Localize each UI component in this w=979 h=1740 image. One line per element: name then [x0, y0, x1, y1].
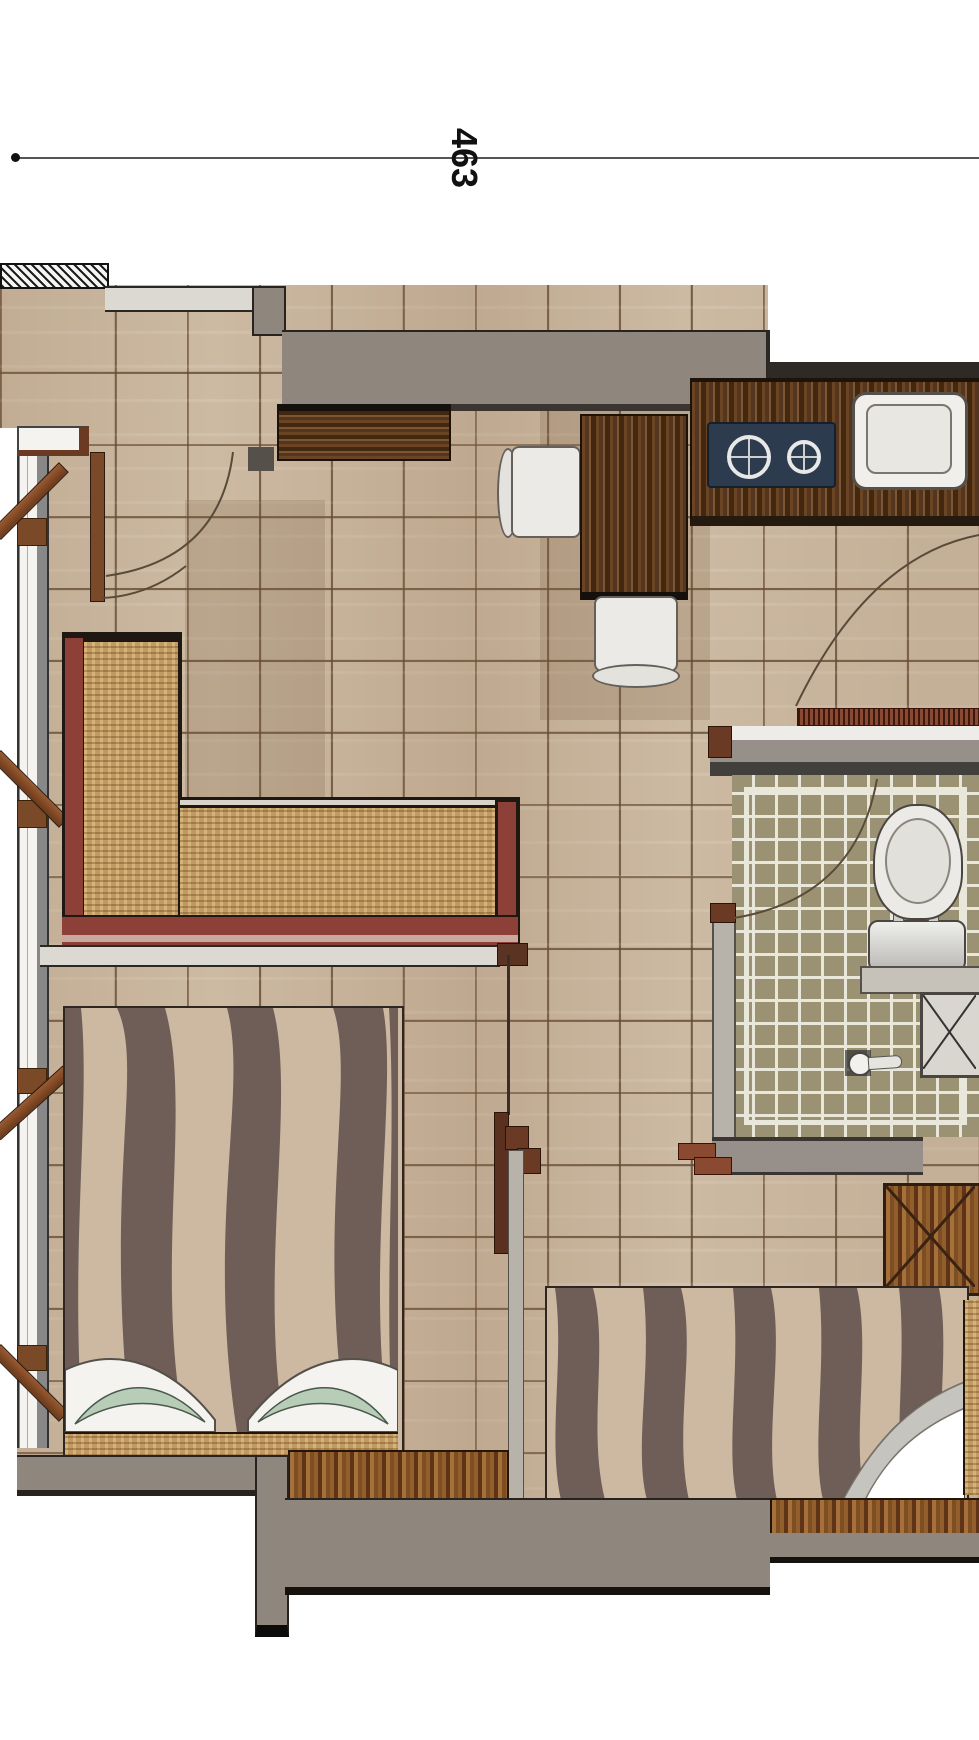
- service-shaft: [920, 992, 979, 1078]
- low-cabinet-bedroom-1: [288, 1450, 509, 1501]
- wall-cap-brown: [497, 943, 528, 966]
- wall-bottom-right: [770, 1533, 979, 1563]
- kitchen-sink: [852, 392, 968, 490]
- divider-jamb-block-1: [505, 1126, 529, 1150]
- bed-2-headboard: [963, 1300, 979, 1495]
- sofa-armrest-right: [498, 802, 516, 928]
- wall-top-thin: [105, 286, 252, 312]
- exterior-cutout-bottom-mid: [285, 1585, 770, 1740]
- balcony-door-leaf: [90, 452, 105, 602]
- bathroom-wall-step-2: [694, 1157, 732, 1175]
- chair-seat: [511, 446, 581, 538]
- entry-console: [277, 404, 451, 461]
- burner-small-icon: [787, 440, 821, 474]
- wall-top-corner-block: [252, 286, 286, 336]
- bathroom-wall-top: [710, 726, 979, 776]
- divider-wall-gray: [508, 1150, 524, 1504]
- sofa-cushion-horizontal: [180, 808, 495, 920]
- dining-table: [580, 414, 688, 600]
- shaft-x-icon: [923, 995, 976, 1069]
- exterior-cutout-bottom-right: [770, 1557, 979, 1740]
- bed-1: [63, 1006, 404, 1458]
- entry-step-shadow: [248, 447, 274, 471]
- cooktop: [707, 422, 836, 488]
- wall-bottom-left: [17, 1455, 258, 1496]
- dining-chair-left: [497, 446, 581, 538]
- bathroom-window-hatch: [797, 708, 979, 726]
- sofa-base-trim: [62, 935, 518, 942]
- window-section-hatch-top-left: [0, 263, 109, 289]
- bathroom-door-jamb-left: [710, 903, 736, 923]
- vanity-counter: [860, 966, 979, 994]
- shower-mixer-handle-icon: [868, 1055, 903, 1070]
- dimension-label-wrap: 463: [432, 112, 496, 204]
- dining-chair-bottom: [592, 596, 680, 688]
- sofa-back-highlight: [180, 800, 495, 805]
- bathroom-door-jamb-top: [708, 726, 732, 758]
- floor-plan: 463: [0, 0, 979, 1740]
- chair-back: [592, 664, 680, 688]
- chair-seat: [594, 596, 678, 672]
- exterior-cutout-top-right: [768, 283, 979, 362]
- bed-2: [545, 1286, 969, 1506]
- wall-bottom-pillar: [255, 1455, 289, 1637]
- wall-living-bedroom1: [40, 945, 500, 967]
- sink-basin: [866, 404, 952, 474]
- bathroom-wall-bottom: [712, 1137, 923, 1175]
- burner-large-icon: [727, 435, 771, 479]
- divider-wall-line: [507, 955, 510, 1115]
- toilet-bowl: [873, 804, 963, 920]
- toilet-bowl-inner: [885, 818, 951, 904]
- bed-1-duvet: [65, 1008, 398, 1432]
- building-edge-top-right: [768, 362, 979, 378]
- sofa-armrest-left: [65, 638, 83, 926]
- dimension-endpoint-dot: [11, 153, 20, 162]
- wall-bottom-main: [285, 1498, 770, 1595]
- dimension-label: 463: [443, 128, 485, 188]
- dimension-line: [15, 157, 979, 159]
- exterior-cutout-bottom-left: [0, 1488, 255, 1740]
- wardrobe-x-cabinet: [883, 1183, 979, 1296]
- exterior-cutout-pillar-side: [255, 1627, 285, 1740]
- low-cabinet-bedroom-2: [770, 1498, 979, 1537]
- wardrobe-x-icon: [886, 1186, 975, 1287]
- bathroom-wall-left: [712, 918, 736, 1172]
- window-mullion-1: [17, 518, 47, 546]
- sofa-vertical-frame: [62, 632, 182, 945]
- window-sill-box: [17, 426, 89, 456]
- toilet-tank: [868, 920, 966, 972]
- bed-2-duvet: [547, 1288, 965, 1500]
- sofa-cushion-vertical: [84, 642, 178, 918]
